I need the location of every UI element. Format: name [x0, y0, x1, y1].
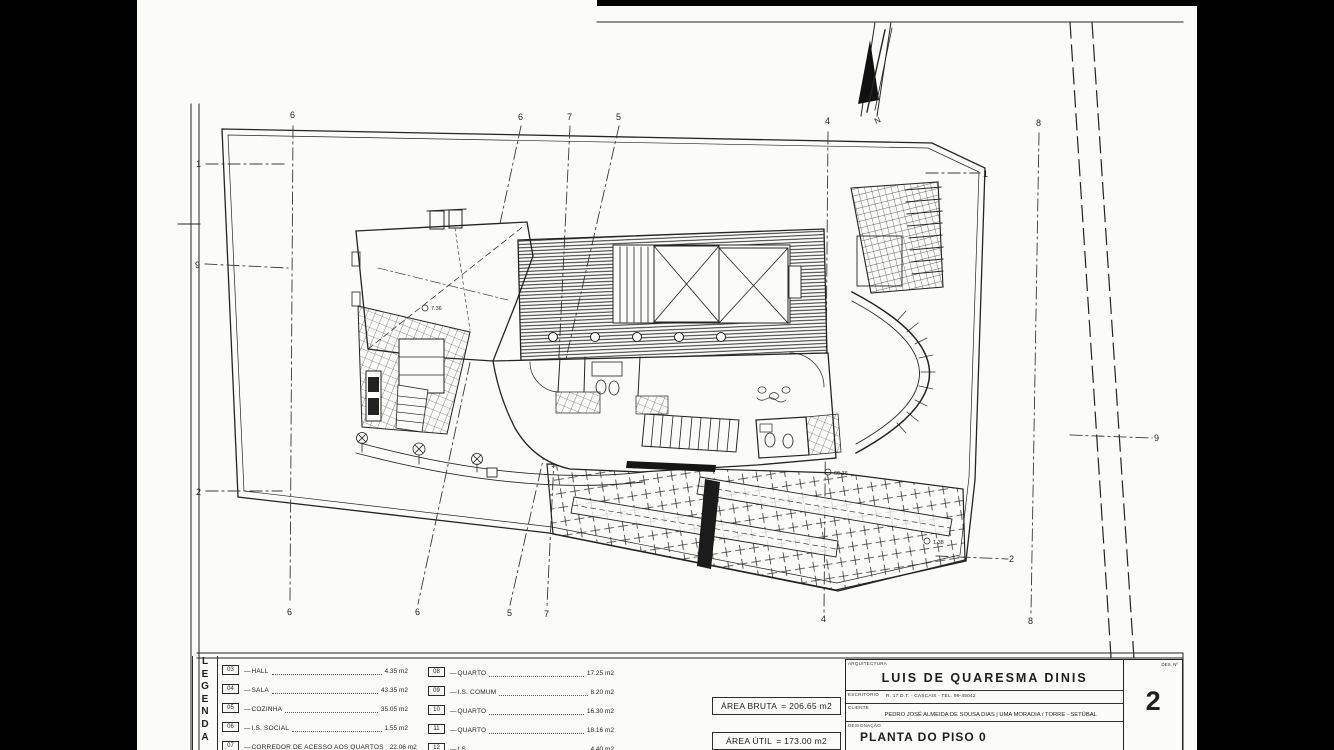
legend-item-label: QUARTO — [458, 727, 487, 734]
area-bruta-label: ÁREA BRUTA — [721, 701, 777, 711]
legend-leader — [471, 744, 587, 750]
legend-item: 04 — SALA 43.35 m2 — [222, 682, 408, 694]
office-info: R. 17 D.T. - CASCAIS - TEL. 99-45042 — [886, 694, 976, 699]
legend-leader — [499, 687, 587, 696]
legend-item-area: 4.40 m2 — [591, 746, 615, 750]
legend-item-label: QUARTO — [458, 670, 487, 677]
legend-item-code: 11 — [428, 724, 445, 734]
title-block-row-client: CLIENTE PEDRO JOSÉ ALMEIDA DE SOUSA DIAS… — [846, 704, 1123, 723]
legend-item-area: 8.20 m2 — [591, 689, 615, 696]
area-bruta-value: = 206.65 m2 — [781, 701, 832, 711]
legend-leader — [489, 725, 584, 734]
legend-item: 07 — CORREDOR DE ACESSO AOS QUARTOS 22.0… — [222, 739, 408, 750]
title-block-main: ARQUITECTURA LUIS DE QUARESMA DINIS ESCR… — [846, 660, 1124, 750]
legend-item-code: 03 — [222, 665, 239, 675]
legend-item-code: 04 — [222, 684, 239, 694]
legend-item-code: 08 — [428, 667, 445, 677]
client-label: CLIENTE — [848, 705, 869, 710]
title-block-row-office: ESCRITÓRIO R. 17 D.T. - CASCAIS - TEL. 9… — [846, 691, 1123, 704]
legend-item-label: QUARTO — [458, 708, 487, 715]
sheet-number: 2 — [1124, 686, 1182, 717]
legend-item-code: 12 — [428, 743, 445, 750]
legend-item-area: 35.05 m2 — [381, 706, 408, 713]
area-util-box: ÁREA ÚTIL = 173.00 m2 — [712, 732, 841, 750]
drawing-title: PLANTA DO PISO 0 — [860, 730, 987, 744]
legend-item-area: 17.25 m2 — [587, 670, 614, 677]
title-block-row-designation: DESIGNAÇÃO PLANTA DO PISO 0 — [846, 722, 1123, 750]
area-bruta-box: ÁREA BRUTA = 206.65 m2 — [712, 697, 841, 715]
legend-item-label: I.S. SOCIAL — [252, 725, 290, 732]
architect-name: LUIS DE QUARESMA DINIS — [846, 671, 1123, 685]
office-label: ESCRITÓRIO — [848, 692, 879, 697]
legend-leader — [272, 666, 382, 675]
legend-item: 11 — QUARTO 18.16 m2 — [428, 722, 614, 734]
title-block: ARQUITECTURA LUIS DE QUARESMA DINIS ESCR… — [845, 659, 1183, 750]
legend-item-label: HALL — [252, 668, 269, 675]
legend-item: 06 — I.S. SOCIAL 1.55 m2 — [222, 720, 408, 732]
legend-item-label: CORREDOR DE ACESSO AOS QUARTOS — [252, 744, 384, 750]
legend-item-label: COZINHA — [252, 706, 283, 713]
legend-leader — [489, 668, 584, 677]
legend-item-code: 05 — [222, 703, 239, 713]
legend-leader — [489, 706, 584, 715]
legend-item-area: 18.16 m2 — [587, 727, 614, 734]
legend-item: 12 — I.S. 4.40 m2 — [428, 741, 614, 750]
legend-item: 10 — QUARTO 16.30 m2 — [428, 703, 614, 715]
area-util-label: ÁREA ÚTIL — [726, 736, 772, 746]
legend-item-code: 07 — [222, 741, 239, 750]
project-description: PEDRO JOSÉ ALMEIDA DE SOUSA DIAS | UMA M… — [860, 712, 1121, 718]
legend-item-label: I.S. — [458, 746, 469, 750]
legend-leader — [272, 685, 378, 694]
page-root: 6 6 7 5 4 8 6 6 5 7 4 8 1 9 2 1 9 2 N 7.… — [0, 0, 1334, 750]
sheet-number-label: DES. Nº — [1161, 662, 1178, 667]
legend-item: 09 — I.S. COMUM 8.20 m2 — [428, 684, 614, 696]
legend-item-area: 1.55 m2 — [385, 725, 409, 732]
sheet-number-box: DES. Nº 2 — [1124, 660, 1182, 750]
legend-item-area: 16.30 m2 — [587, 708, 614, 715]
designation-label: DESIGNAÇÃO — [848, 723, 881, 728]
legend-item-code: 10 — [428, 705, 445, 715]
legend-item-area: 22.06 m2 — [390, 744, 417, 750]
legend-item: 03 — HALL 4.35 m2 — [222, 663, 408, 675]
legend-item-code: 09 — [428, 686, 445, 696]
annotation-overlay: L E G E N D A 03 — HALL 4.35 m2 04 — SAL… — [0, 0, 1334, 750]
legend-leader — [285, 704, 378, 713]
area-util-value: = 173.00 m2 — [776, 736, 827, 746]
legend-item-label: I.S. COMUM — [458, 689, 497, 696]
legend-item: 05 — COZINHA 35.05 m2 — [222, 701, 408, 713]
title-block-row-architect: ARQUITECTURA LUIS DE QUARESMA DINIS — [846, 660, 1123, 691]
legend-item: 08 — QUARTO 17.25 m2 — [428, 665, 614, 677]
legend-item-code: 06 — [222, 722, 239, 732]
legend-item-label: SALA — [252, 687, 269, 694]
legend-item-area: 4.35 m2 — [385, 668, 409, 675]
legend-title-vertical: L E G E N D A — [192, 656, 218, 750]
legend-item-area: 43.35 m2 — [381, 687, 408, 694]
discipline-label: ARQUITECTURA — [848, 661, 887, 666]
legend-leader — [292, 723, 381, 732]
